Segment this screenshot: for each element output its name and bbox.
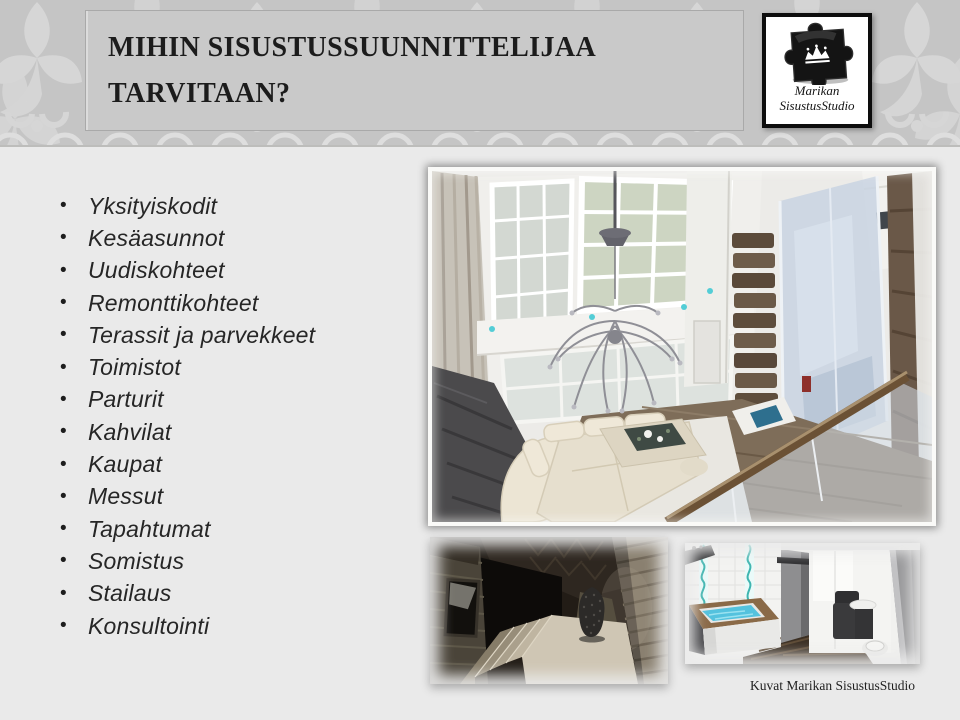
header-band: MIHIN SISUSTUSSUUNNITTELIJAA TARVITAAN? … (0, 0, 960, 147)
list-item-label: Uudiskohteet (88, 257, 225, 284)
bullet: • (52, 357, 88, 379)
list-item: •Konsultointi (52, 610, 315, 642)
bullet: • (52, 260, 88, 282)
list-item-label: Terassit ja parvekkeet (88, 322, 315, 349)
logo: Marikan SisustusStudio (762, 13, 872, 128)
logo-name-line-2: SisustusStudio (779, 98, 854, 113)
list-item-label: Yksityiskodit (88, 193, 217, 220)
bullet: • (52, 486, 88, 508)
staircase-render (430, 537, 668, 684)
logo-name-line-1: Marikan (779, 83, 854, 98)
living-room-render (428, 167, 936, 526)
logo-text: Marikan SisustusStudio (779, 83, 854, 113)
list-item: •Stailaus (52, 578, 315, 610)
list-item: •Messut (52, 481, 315, 513)
list-item-label: Kesäasunnot (88, 225, 224, 252)
list-item: •Somistus (52, 545, 315, 577)
bullet: • (52, 227, 88, 249)
list-item-label: Konsultointi (88, 613, 209, 640)
presentation-slide: MIHIN SISUSTUSSUUNNITTELIJAA TARVITAAN? … (0, 0, 960, 720)
bathroom-render (685, 543, 920, 664)
title-box: MIHIN SISUSTUSSUUNNITTELIJAA TARVITAAN? (85, 10, 744, 131)
list-item-label: Messut (88, 483, 163, 510)
toilet-area (809, 549, 891, 656)
title-line-1: MIHIN SISUSTUSSUUNNITTELIJAA (108, 25, 743, 71)
puzzle-piece-icon (773, 19, 861, 85)
list-item-label: Remonttikohteet (88, 290, 258, 317)
list-item: •Kahvilat (52, 416, 315, 448)
list-item: •Tapahtumat (52, 513, 315, 545)
tall-window-left (492, 181, 572, 333)
shower-partition (777, 549, 813, 643)
list-item: •Yksityiskodit (52, 190, 315, 222)
ceiling-edge (781, 543, 920, 550)
list-item: •Kaupat (52, 448, 315, 480)
white-pillar (684, 171, 732, 387)
list-item-label: Kaupat (88, 451, 162, 478)
bullet: • (52, 195, 88, 217)
list-item: •Parturit (52, 384, 315, 416)
topics-list: •Yksityiskodit •Kesäasunnot •Uudiskohtee… (52, 190, 315, 642)
list-item-label: Stailaus (88, 580, 171, 607)
bathtub (689, 598, 781, 655)
bullet: • (52, 550, 88, 572)
bullet: • (52, 518, 88, 540)
list-item-label: Toimistot (88, 354, 181, 381)
bullet: • (52, 324, 88, 346)
list-item-label: Parturit (88, 386, 164, 413)
photo-credit-caption: Kuvat Marikan SisustusStudio (700, 678, 915, 694)
page-title: MIHIN SISUSTUSSUUNNITTELIJAA TARVITAAN? (108, 25, 743, 117)
bullet: • (52, 454, 88, 476)
list-item-label: Kahvilat (88, 419, 171, 446)
bullet: • (52, 421, 88, 443)
list-item: •Terassit ja parvekkeet (52, 319, 315, 351)
wall-picture (443, 578, 480, 638)
list-item: •Toimistot (52, 351, 315, 383)
bullet: • (52, 615, 88, 637)
red-accent (802, 376, 811, 392)
title-line-2: TARVITAAN? (108, 71, 743, 117)
list-item: •Kesäasunnot (52, 222, 315, 254)
list-item-label: Somistus (88, 548, 184, 575)
list-item: •Remonttikohteet (52, 287, 315, 319)
bullet: • (52, 389, 88, 411)
bullet: • (52, 583, 88, 605)
bullet: • (52, 292, 88, 314)
list-item: •Uudiskohteet (52, 255, 315, 287)
list-item-label: Tapahtumat (88, 516, 211, 543)
damask-scallop-row (0, 135, 960, 145)
